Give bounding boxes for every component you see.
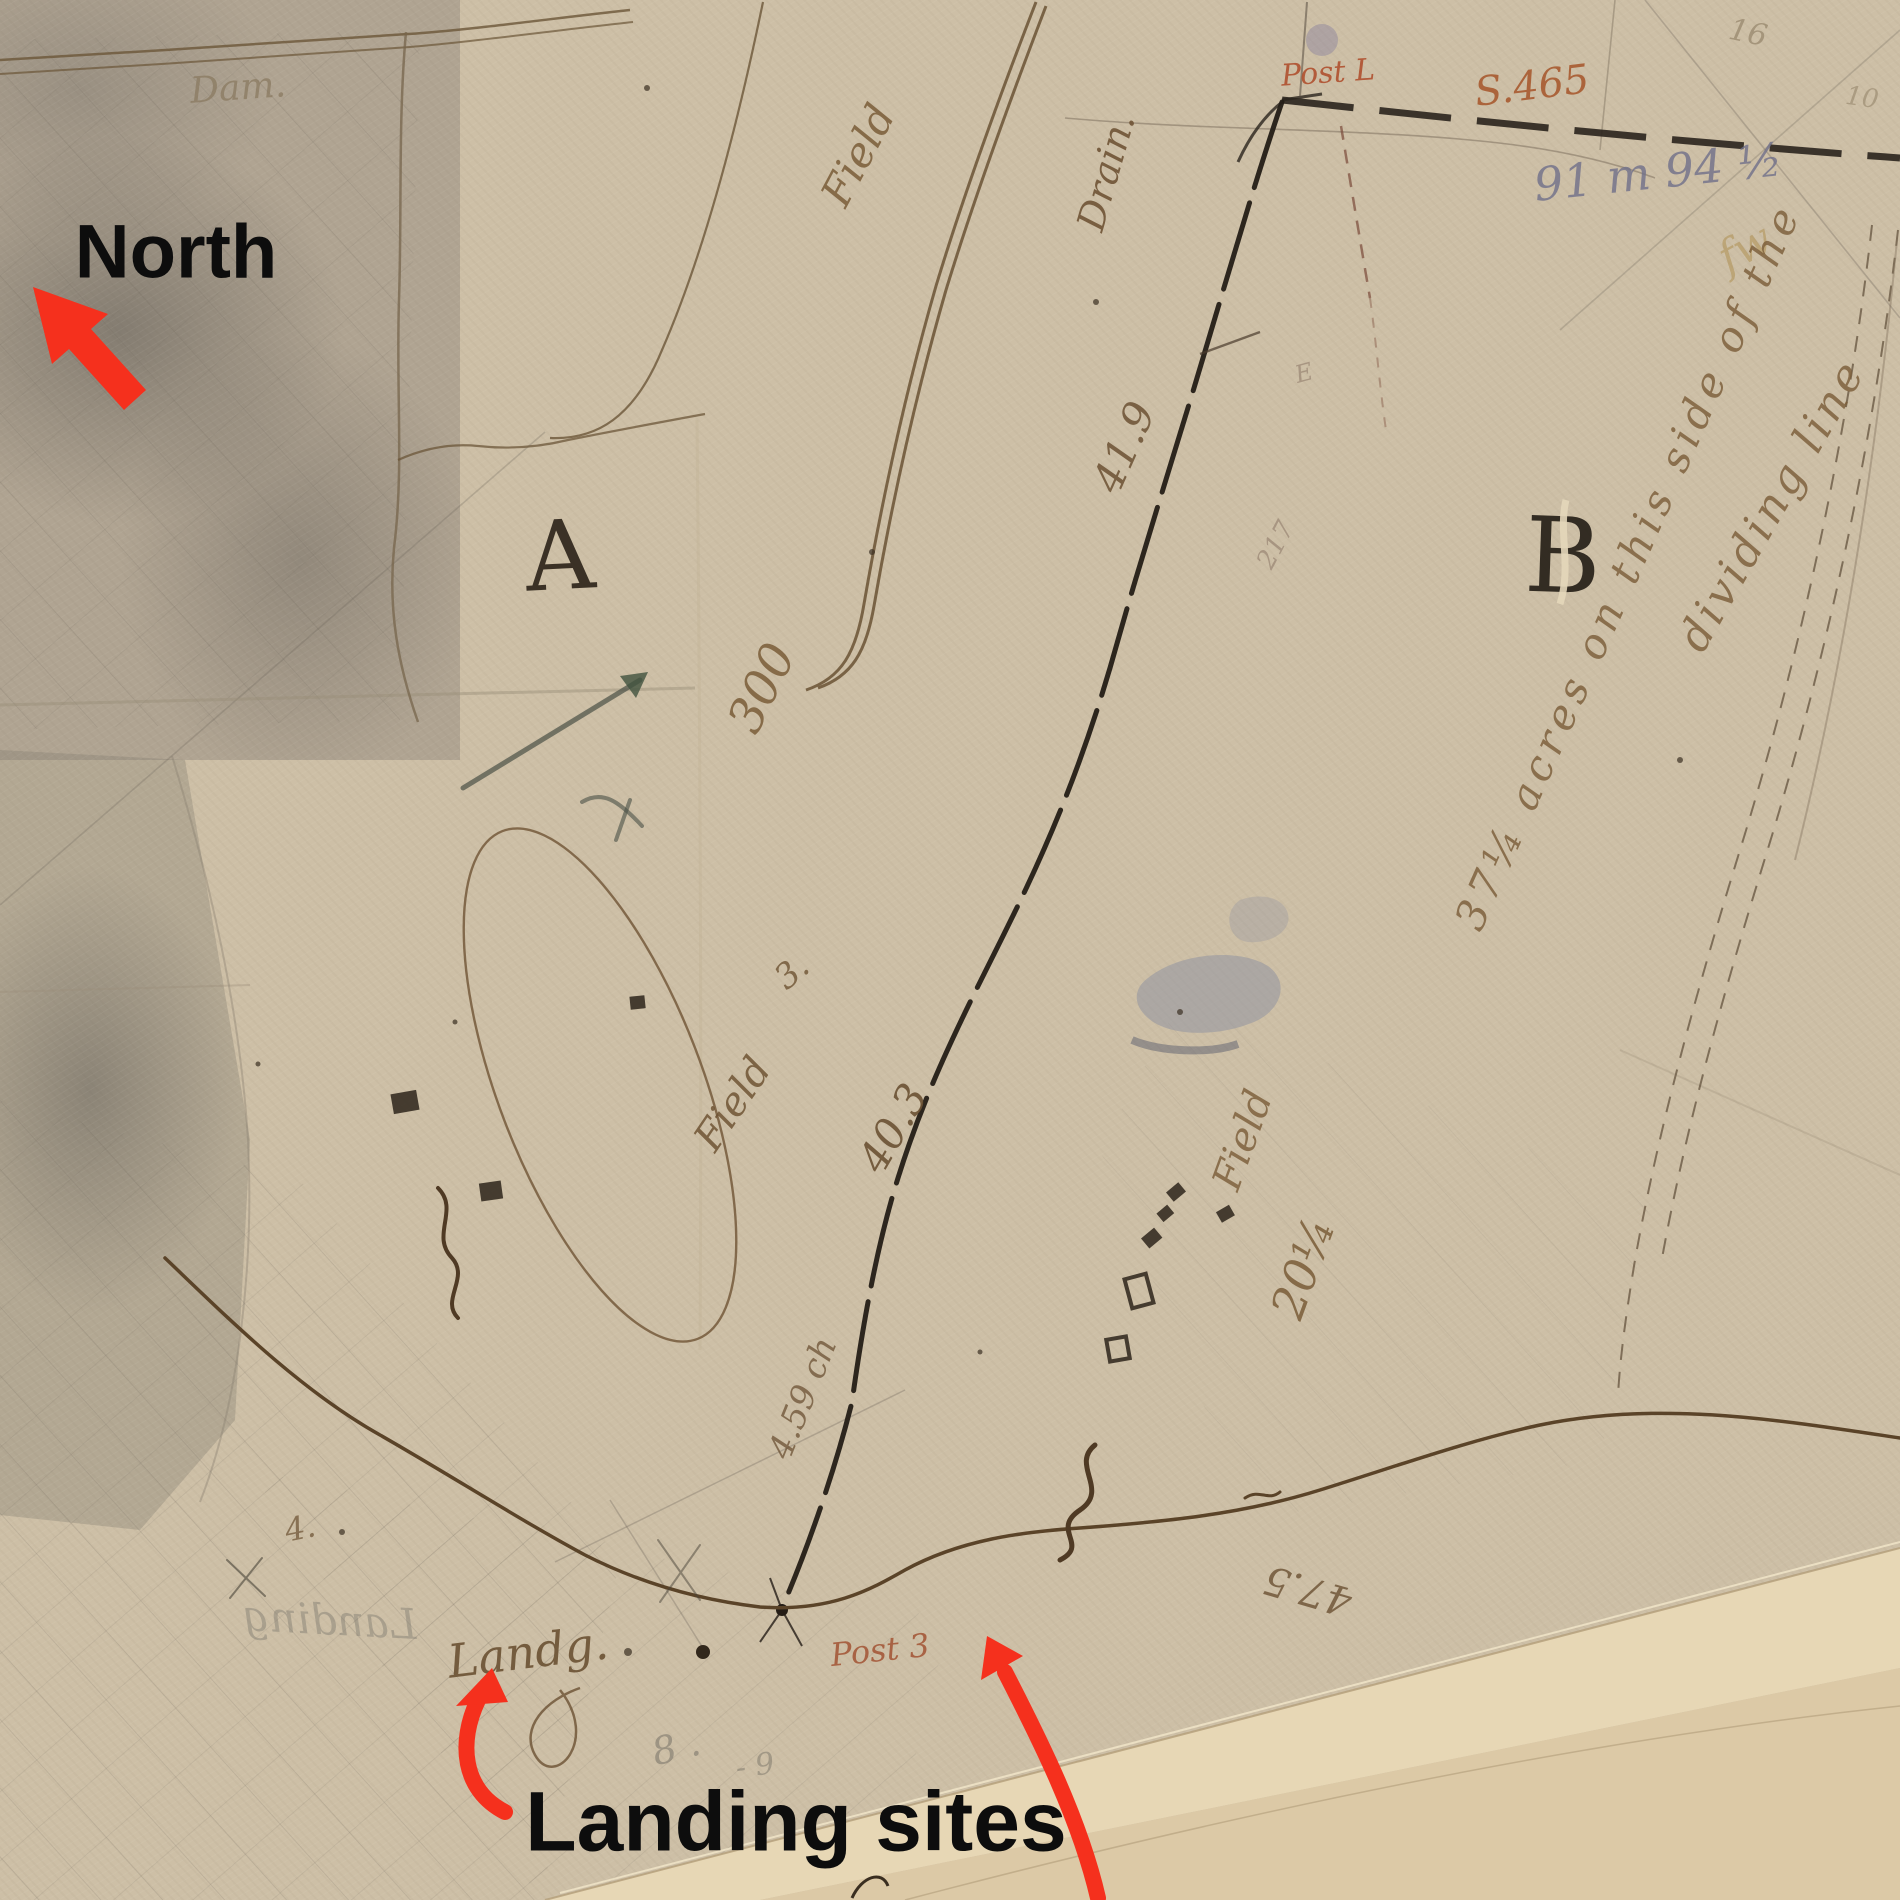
overlay-graphics: [0, 0, 1900, 1900]
north-arrow-icon: [33, 287, 146, 410]
paper-crack: [1560, 500, 1566, 604]
landing-arrow-left-icon: [456, 1668, 508, 1812]
map-screenshot: Dam. Field Drain. Post L S.465 91 m 94 ½…: [0, 0, 1900, 1900]
landing-arrow-right-icon: [981, 1636, 1098, 1898]
